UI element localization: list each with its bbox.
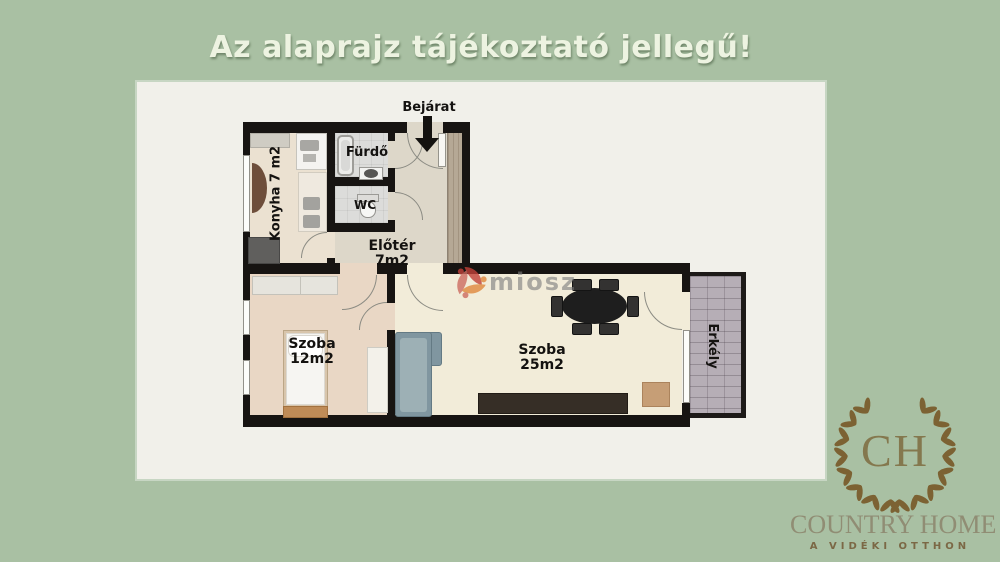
wall (388, 220, 395, 232)
window (243, 155, 250, 232)
wall (327, 122, 335, 232)
door-gap (387, 303, 395, 330)
wall (388, 133, 395, 141)
kitchen-chair (303, 215, 320, 228)
balcony-wall (690, 413, 746, 418)
wall (682, 263, 690, 292)
wall (243, 122, 407, 133)
window (243, 300, 250, 335)
wardrobe-divider (300, 276, 301, 295)
wall (335, 223, 395, 232)
wall (243, 122, 250, 155)
wall (387, 274, 395, 303)
dining-chair (572, 323, 592, 335)
sideboard (478, 393, 628, 414)
kitchen-sink (300, 140, 319, 151)
entrance-arrow-head-icon (415, 138, 439, 152)
dining-chair (627, 296, 639, 317)
kitchen-chair (303, 197, 320, 210)
dining-chair (599, 323, 619, 335)
door-gap (327, 232, 335, 258)
bathroom-sink-bowl (364, 169, 378, 178)
door-gap (682, 292, 690, 330)
room-label-hall: Előtér 7m2 (350, 239, 434, 270)
page: Az alaprajz tájékoztató jellegű! (0, 0, 1000, 562)
brand-monogram: CH (845, 424, 945, 477)
dining-chair (599, 279, 619, 291)
kitchen-counter (296, 133, 327, 170)
room-label-wc: WC (351, 199, 379, 212)
wall (243, 335, 250, 360)
wardrobe (252, 276, 338, 295)
entrance-door-leaf (438, 133, 446, 167)
room-label-bathroom: Fürdő (345, 146, 389, 160)
entrance-arrow-icon (423, 116, 432, 138)
room-label-balcony: Erkély (705, 316, 719, 376)
room-label-large: Szoba 25m2 (497, 343, 587, 374)
watermark-logo-icon (451, 263, 489, 301)
kitchen-hob (303, 154, 316, 162)
wall (388, 186, 395, 192)
wall (462, 122, 470, 274)
brand-tagline: A VIDÉKI OTTHON (800, 541, 980, 552)
wall (243, 263, 340, 274)
page-title: Az alaprajz tájékoztató jellegű! (0, 30, 962, 65)
dining-chair (551, 296, 563, 317)
wall (387, 330, 395, 415)
room-label-kitchen: Konyha 7 m2 (270, 144, 285, 244)
window (243, 360, 250, 395)
wall (243, 274, 250, 300)
hall-wardrobe (447, 133, 463, 263)
balcony-wall (741, 272, 746, 418)
door-gap (388, 141, 395, 168)
bed-footboard (283, 406, 328, 418)
door-gap (388, 192, 395, 220)
watermark-text: miosz (489, 268, 577, 296)
entrance-label: Bejárat (399, 101, 459, 115)
wall (388, 168, 395, 177)
wall (682, 403, 690, 417)
brand-name: COUNTRY HOME (790, 510, 990, 540)
side-table (642, 382, 670, 407)
desk (367, 347, 388, 413)
balcony-wall (690, 272, 746, 276)
window (683, 330, 690, 403)
room-label-small: Szoba 12m2 (267, 337, 357, 368)
sofa-cushions (400, 338, 427, 412)
